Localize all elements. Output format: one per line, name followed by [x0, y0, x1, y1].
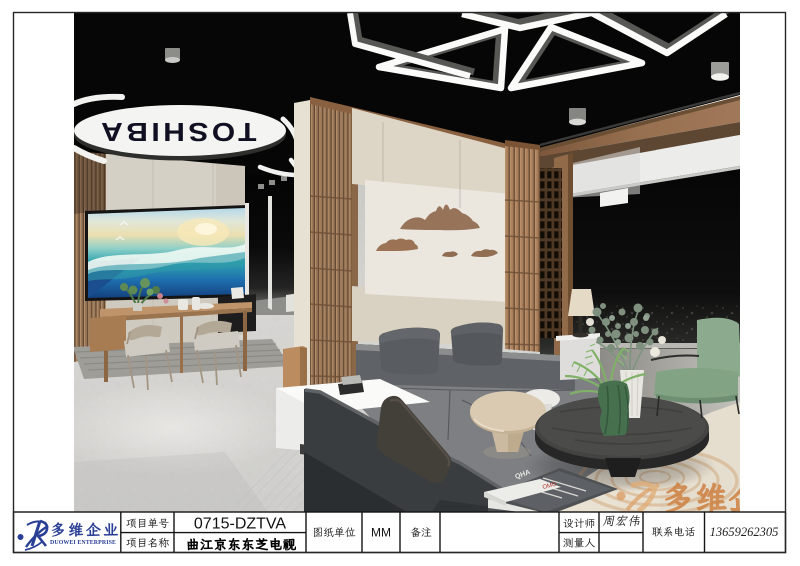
svg-text:13659262305: 13659262305: [710, 525, 779, 539]
svg-text:MM: MM: [371, 526, 391, 540]
svg-text:0715-DZTVA: 0715-DZTVA: [194, 516, 287, 533]
svg-text:TOSHIBA: TOSHIBA: [98, 117, 257, 145]
svg-text:DUOWEI ENTERPRISE: DUOWEI ENTERPRISE: [50, 540, 116, 546]
